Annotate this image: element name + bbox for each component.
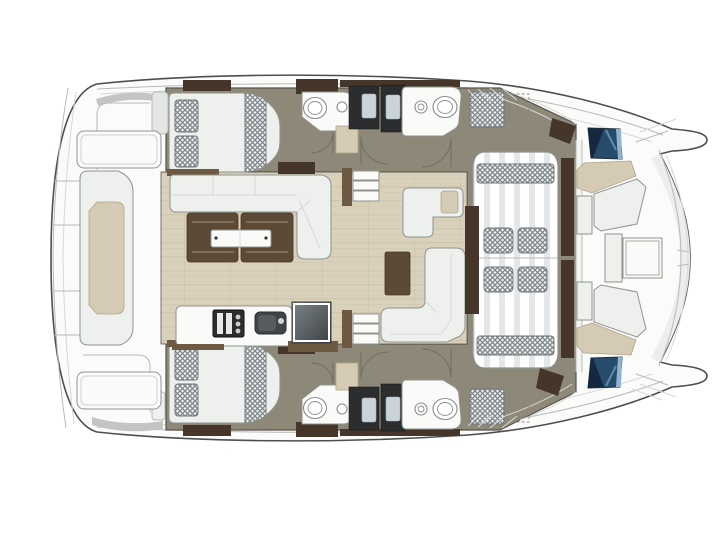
faucet (278, 318, 284, 324)
floor-plan (0, 0, 720, 540)
seat-cushion (484, 228, 513, 253)
seat-cushion (518, 267, 547, 292)
bench-seat (605, 234, 622, 282)
table-tray (211, 230, 271, 247)
ottoman (385, 252, 410, 295)
toilet (304, 98, 327, 119)
side-table (561, 158, 574, 256)
cockpit-table (623, 238, 662, 278)
side-table (465, 206, 479, 314)
shower-glass (386, 95, 400, 119)
companionway-stairs (342, 310, 379, 348)
stern-lounge-cushion (89, 202, 124, 314)
wash-basin (415, 101, 427, 113)
transom-step (77, 131, 161, 168)
bench-seat (577, 196, 592, 234)
catamaran-floor-plan-svg (0, 0, 720, 540)
transom-step (77, 372, 161, 409)
pillow (175, 100, 198, 132)
side-table (561, 260, 574, 358)
pillow (175, 136, 198, 167)
companionway-stairs (342, 168, 379, 206)
wash-basin (337, 102, 347, 112)
wardrobe (278, 162, 315, 174)
nav-seat-cushion (441, 191, 458, 213)
seat-cushion (518, 228, 547, 253)
deck-locker (152, 92, 168, 134)
seat-cushion (484, 267, 513, 292)
sunpad-bolster (477, 336, 554, 355)
sunpad-bolster (477, 164, 554, 183)
vanity-shelf (336, 126, 358, 153)
bow-hatch (588, 357, 622, 388)
toilet (433, 97, 457, 118)
shower-glass (362, 94, 376, 118)
bow-hatch (588, 128, 622, 159)
bench-seat (577, 282, 592, 320)
wardrobe (183, 80, 231, 91)
bed-runner (245, 93, 266, 172)
galley-bed-trim (172, 344, 224, 350)
galley (172, 306, 292, 350)
tv-unit (288, 302, 338, 352)
